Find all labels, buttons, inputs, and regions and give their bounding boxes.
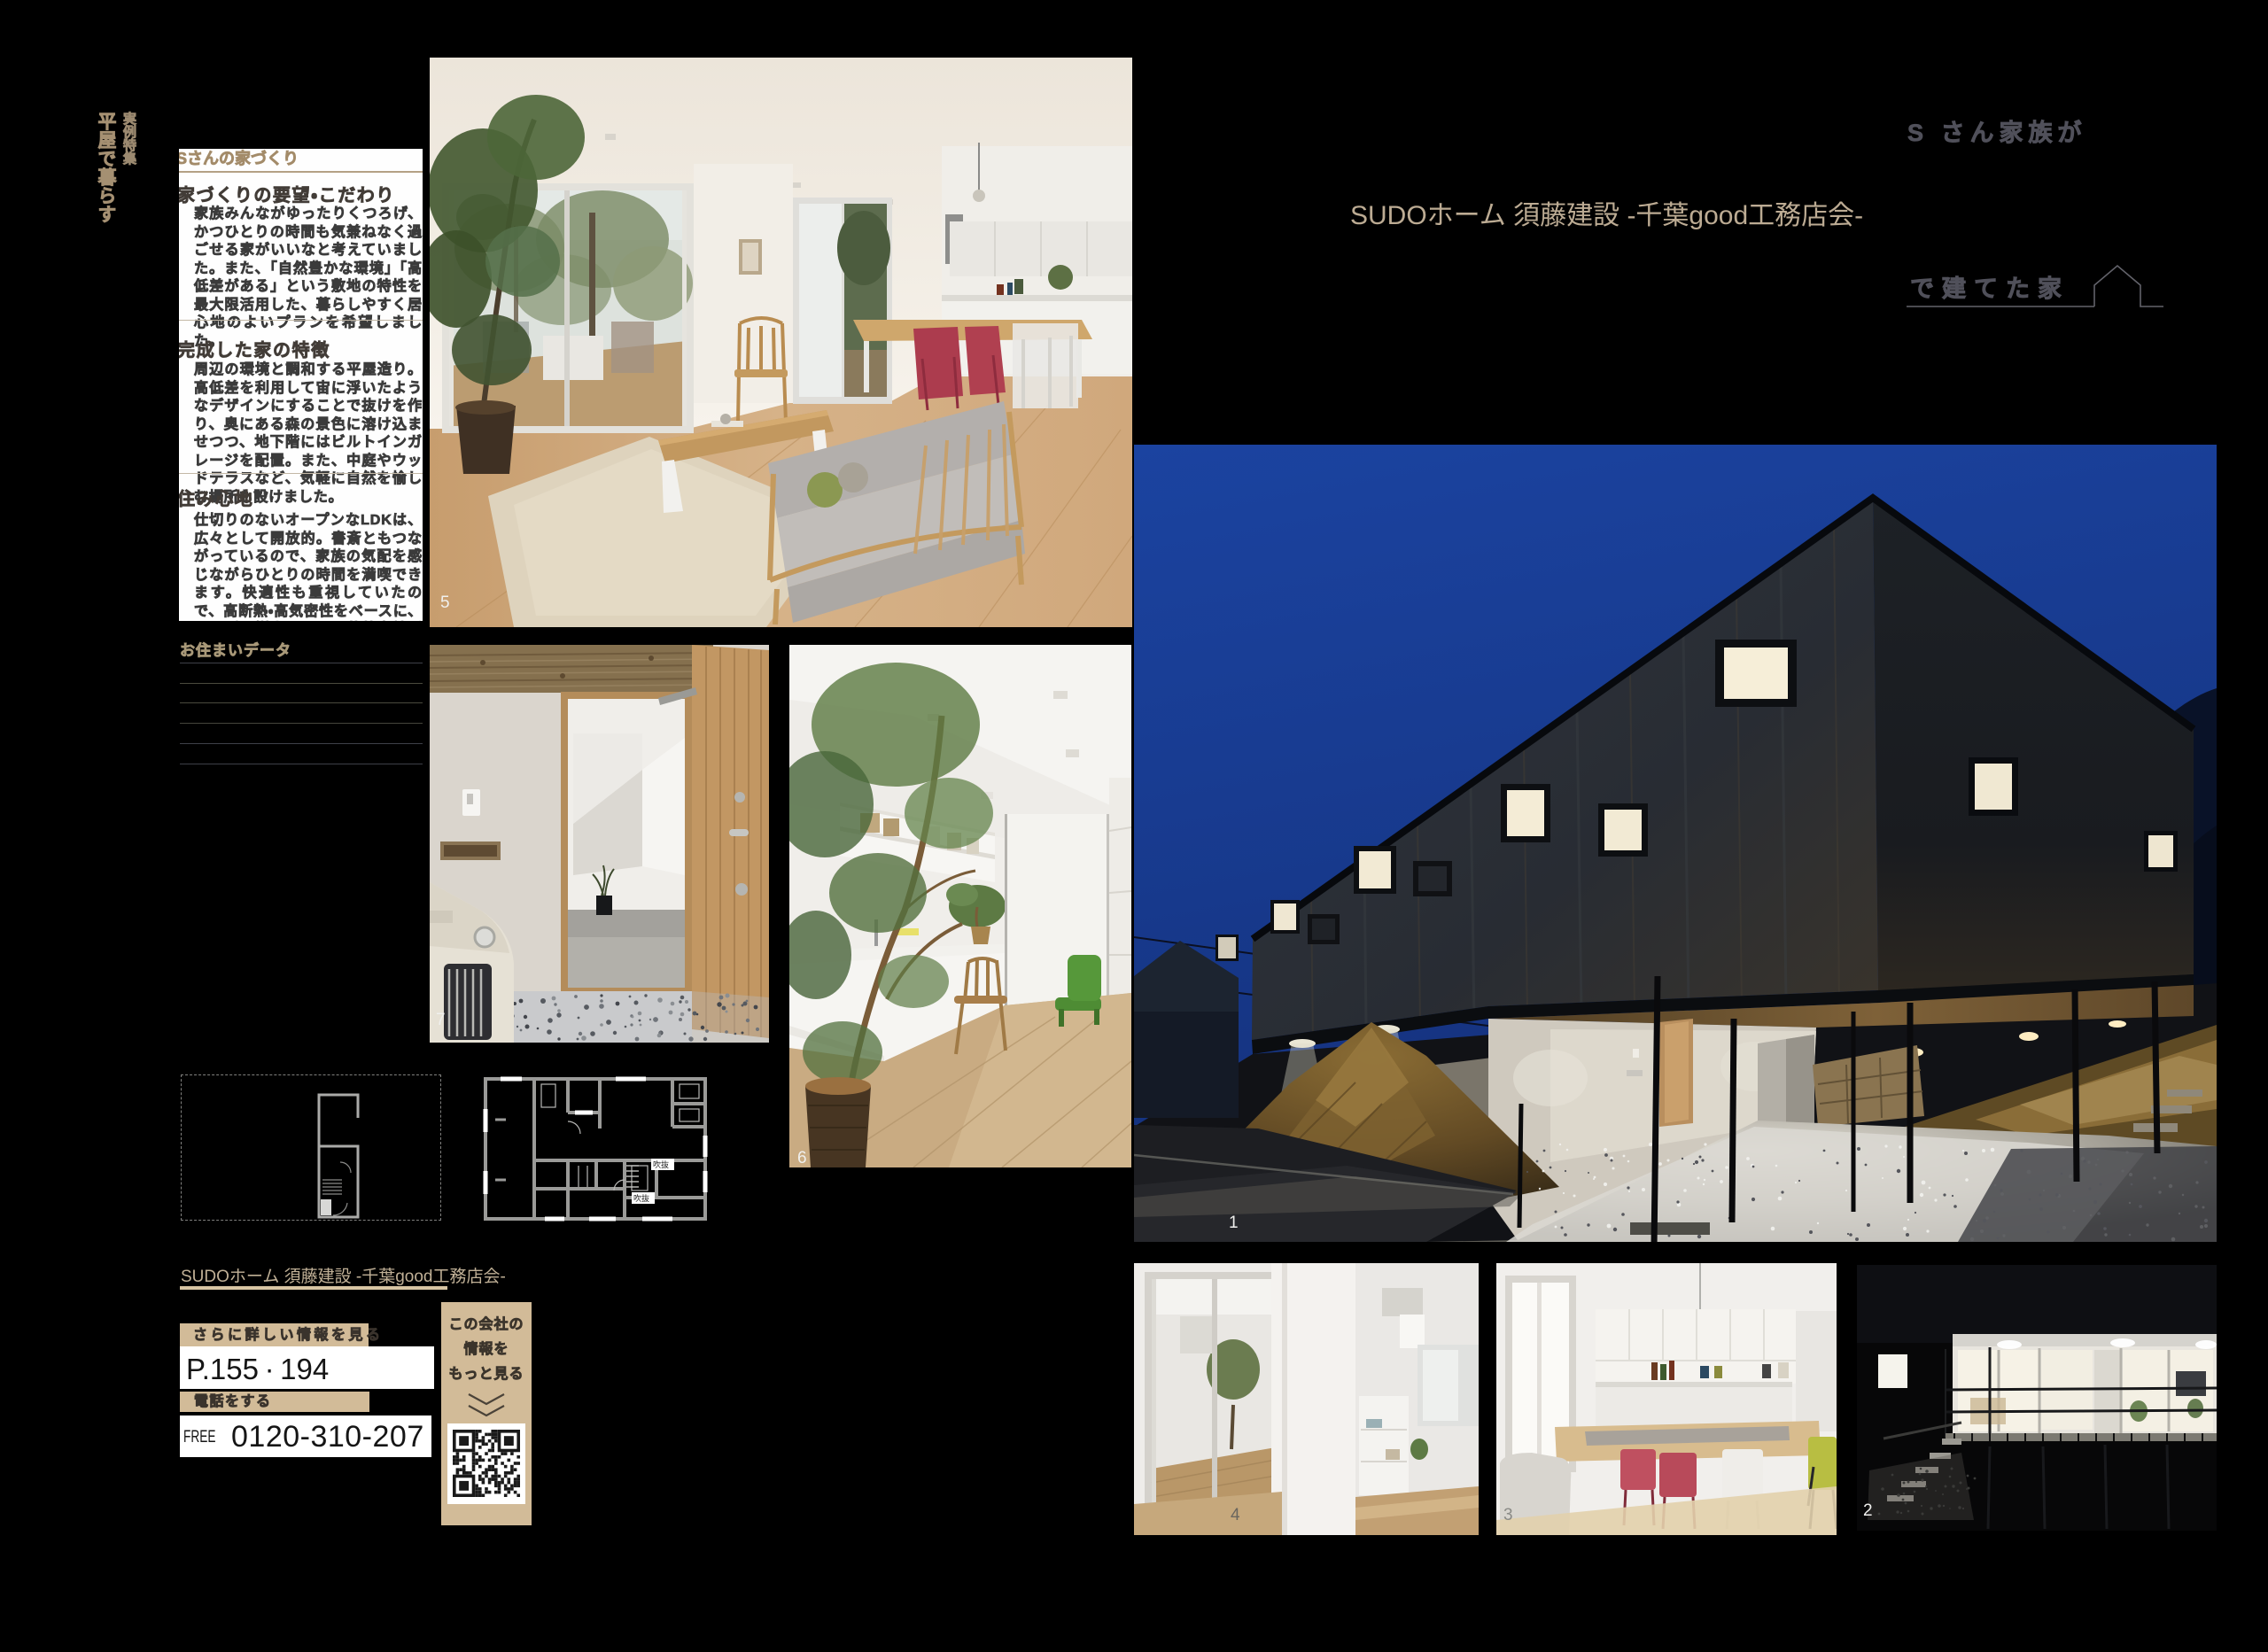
svg-text:吹抜: 吹抜 xyxy=(653,1160,669,1169)
svg-text:吹抜: 吹抜 xyxy=(633,1193,649,1203)
